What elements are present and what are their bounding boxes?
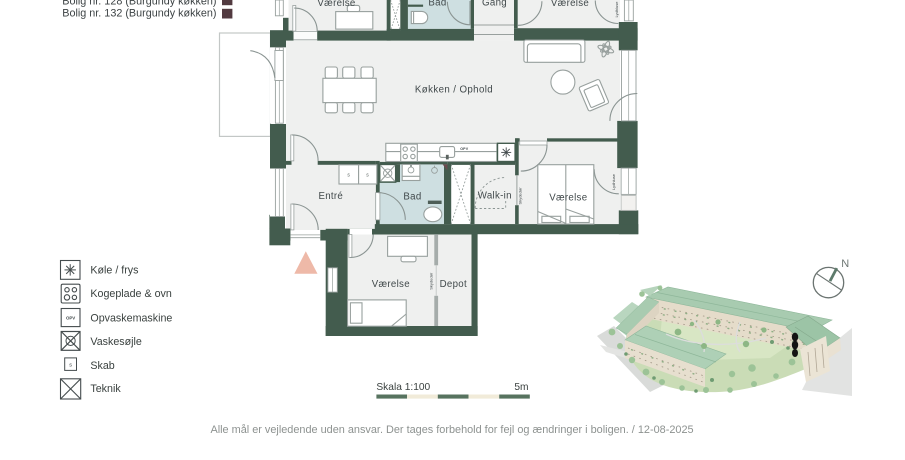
svg-text:Alle mål er vejledende uden an: Alle mål er vejledende uden ansvar. Der …: [210, 424, 693, 436]
svg-text:Skala 1:100: Skala 1:100: [376, 382, 430, 393]
svg-text:Lydhluse: Lydhluse: [611, 173, 616, 190]
svg-text:Værelse: Værelse: [372, 279, 410, 290]
svg-text:Køkken / Ophold: Køkken / Ophold: [415, 85, 493, 96]
svg-text:Værelse: Værelse: [549, 193, 587, 204]
svg-text:Skab: Skab: [90, 360, 114, 372]
svg-text:Skydedør: Skydedør: [517, 187, 522, 205]
svg-text:Vaskesøjle: Vaskesøjle: [90, 336, 142, 348]
svg-text:OPV: OPV: [66, 316, 75, 321]
svg-text:Værelse: Værelse: [317, 0, 355, 9]
svg-text:N: N: [841, 258, 849, 270]
svg-text:Teknik: Teknik: [90, 383, 121, 395]
svg-text:s: s: [69, 363, 72, 369]
svg-text:Værelse: Værelse: [551, 0, 589, 9]
svg-text:Gang: Gang: [482, 0, 507, 9]
svg-text:Skydedør: Skydedør: [428, 272, 433, 290]
svg-text:OPV: OPV: [460, 147, 469, 151]
svg-text:Køle / frys: Køle / frys: [90, 265, 138, 277]
svg-text:Bolig nr. 132 (Burgundy køkken: Bolig nr. 132 (Burgundy køkken): [62, 8, 216, 20]
svg-text:Depot: Depot: [440, 279, 467, 290]
svg-text:Kogeplade & ovn: Kogeplade & ovn: [90, 288, 171, 300]
svg-text:Entré: Entré: [318, 191, 343, 202]
svg-text:5m: 5m: [514, 382, 528, 393]
svg-text:Opvaskemaskine: Opvaskemaskine: [90, 313, 172, 325]
svg-text:Lydhluse: Lydhluse: [614, 1, 619, 18]
svg-text:Walk-in: Walk-in: [478, 191, 512, 202]
svg-text:Bad: Bad: [428, 0, 446, 8]
svg-text:Bolig nr. 128 (Burgundy køkken: Bolig nr. 128 (Burgundy køkken): [62, 0, 216, 8]
svg-text:Bad: Bad: [403, 192, 421, 203]
